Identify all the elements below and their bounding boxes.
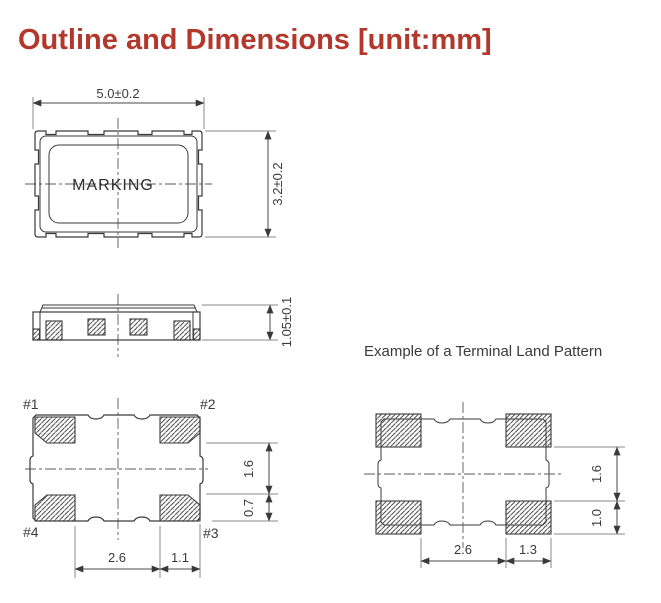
land-height-label: 1.0 [589, 509, 604, 527]
pad-2 [160, 417, 200, 443]
land-pattern-drawing: Example of a Terminal Land Pattern 2.6 1… [345, 335, 661, 585]
land-dimension-pitch: 1.6 1.0 [554, 447, 625, 534]
package-lid-side [40, 305, 197, 312]
pad-1-label: #1 [23, 396, 39, 412]
land-dimension-span: 2.6 1.3 [421, 538, 551, 568]
page-title: Outline and Dimensions [unit:mm] [18, 24, 492, 57]
height-dim-label: 3.2±0.2 [270, 162, 285, 205]
thickness-dim-label: 1.05±0.1 [279, 297, 294, 348]
pad-span-label: 2.6 [108, 550, 126, 565]
dimension-pad-pitch: 1.6 0.7 [206, 443, 278, 521]
pad-width-label: 1.1 [171, 550, 189, 565]
top-view-drawing: MARKING 5.0±0.2 3.2±0.2 [0, 80, 320, 260]
land-pad-4 [376, 501, 421, 534]
land-span-label: 2.6 [454, 542, 472, 557]
bottom-view-drawing: #1 #2 #3 #4 2.6 1.1 1.6 0.7 [0, 390, 320, 590]
land-pattern-title: Example of a Terminal Land Pattern [364, 343, 602, 360]
land-pitch-label: 1.6 [589, 465, 604, 483]
side-view-pads [33, 319, 200, 340]
pad-height-label: 0.7 [241, 499, 256, 517]
pad-1 [35, 417, 75, 443]
dimension-thickness: 1.05±0.1 [202, 297, 294, 348]
dimension-height: 3.2±0.2 [205, 131, 285, 237]
datasheet-outline-section: Outline and Dimensions [unit:mm] MARKING… [0, 0, 661, 603]
marking-text: MARKING [72, 177, 154, 194]
width-dim-label: 5.0±0.2 [96, 86, 139, 101]
dimension-width: 5.0±0.2 [33, 86, 204, 129]
dimension-pad-span: 2.6 1.1 [75, 524, 200, 578]
side-view-drawing: 1.05±0.1 [0, 285, 320, 375]
land-pad-3 [506, 501, 551, 534]
pad-2-label: #2 [200, 396, 216, 412]
pad-3-label: #3 [203, 525, 219, 541]
pitch-label: 1.6 [241, 460, 256, 478]
pad-4-label: #4 [23, 524, 39, 540]
pad-4 [35, 495, 75, 521]
land-width-label: 1.3 [519, 542, 537, 557]
pad-3 [160, 495, 200, 521]
